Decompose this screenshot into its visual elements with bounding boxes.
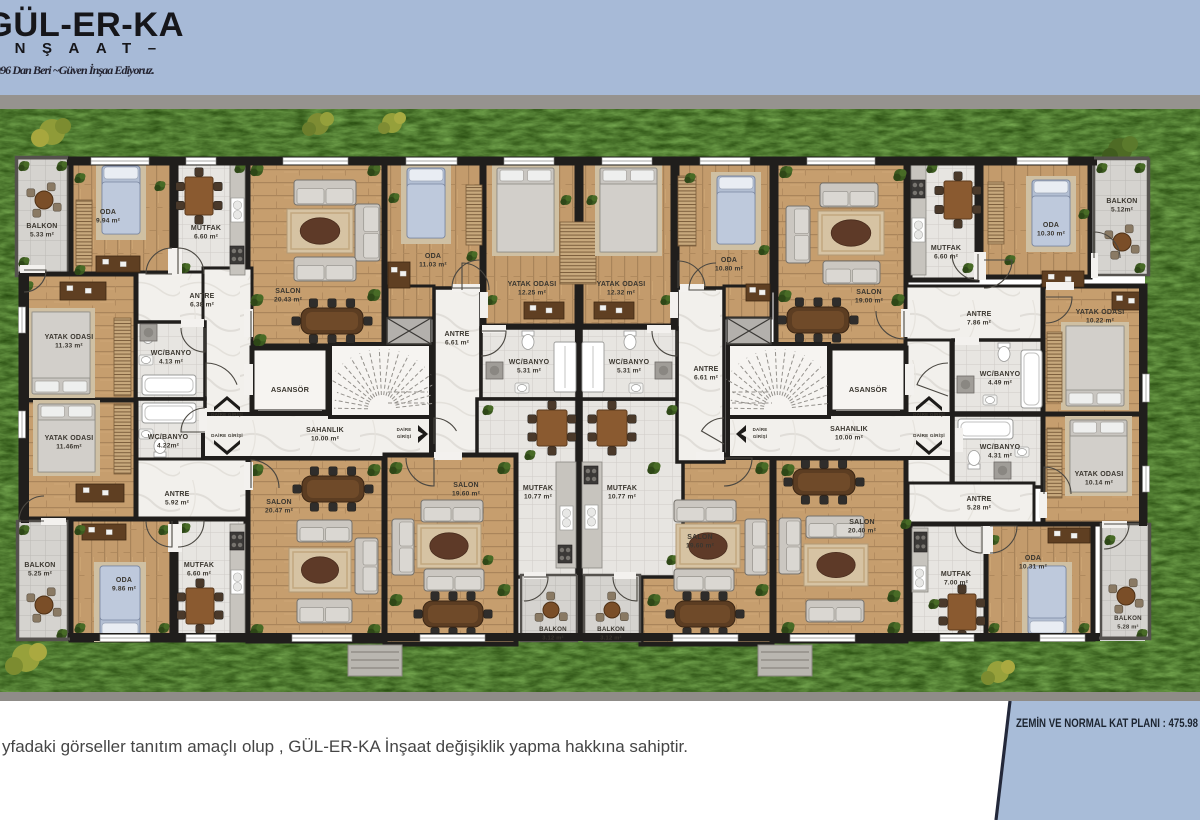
svg-text:WC/BANYO: WC/BANYO <box>151 350 192 357</box>
svg-text:10.30 m²: 10.30 m² <box>1037 231 1066 238</box>
svg-text:4.22m²: 4.22m² <box>157 443 180 450</box>
svg-text:ANTRE: ANTRE <box>444 331 469 338</box>
svg-text:DAİRE: DAİRE <box>397 427 412 432</box>
svg-text:ODA: ODA <box>1025 555 1041 562</box>
svg-text:DAİRE GİRİŞİ: DAİRE GİRİŞİ <box>211 432 243 438</box>
svg-text:ZEMİN VE NORMAL KAT PLANI : 47: ZEMİN VE NORMAL KAT PLANI : 475.98 <box>1016 717 1199 730</box>
svg-text:YATAK ODASI: YATAK ODASI <box>1076 309 1125 316</box>
svg-text:YATAK ODASI: YATAK ODASI <box>1075 471 1124 478</box>
svg-text:MUTFAK: MUTFAK <box>931 245 961 252</box>
svg-text:19.60 m²: 19.60 m² <box>686 543 715 550</box>
svg-text:BALKON: BALKON <box>597 626 625 633</box>
svg-text:11.33 m²: 11.33 m² <box>55 343 83 350</box>
svg-text:10.31 m²: 10.31 m² <box>1019 564 1048 571</box>
svg-text:SAHANLIK: SAHANLIK <box>306 427 344 434</box>
svg-text:MUTFAK: MUTFAK <box>184 562 214 569</box>
svg-text:ODA: ODA <box>116 577 132 584</box>
svg-text:GİRİŞİ: GİRİŞİ <box>753 434 767 439</box>
svg-text:DAİRE GİRİŞİ: DAİRE GİRİŞİ <box>211 411 243 417</box>
svg-text:10.22 m²: 10.22 m² <box>1086 318 1115 325</box>
svg-text:YATAK ODASI: YATAK ODASI <box>597 281 646 288</box>
svg-text:ANTRE: ANTRE <box>189 293 214 300</box>
svg-text:ASANSÖR: ASANSÖR <box>271 385 310 394</box>
svg-text:SALON: SALON <box>275 288 301 295</box>
svg-text:DAİRE GİRİŞİ: DAİRE GİRİŞİ <box>913 432 945 438</box>
svg-text:GÜL-ER-KA: GÜL-ER-KA <box>0 5 184 44</box>
svg-text:10.80 m²: 10.80 m² <box>715 266 744 273</box>
svg-text:12.25 m²: 12.25 m² <box>518 290 547 297</box>
svg-text:DAİRE GİRİŞİ: DAİRE GİRİŞİ <box>913 411 945 417</box>
svg-text:SALON: SALON <box>849 519 875 526</box>
svg-text:19.00 m²: 19.00 m² <box>855 298 884 305</box>
svg-text:10.77 m²: 10.77 m² <box>608 494 637 501</box>
svg-text:YATAK ODASI: YATAK ODASI <box>45 435 94 442</box>
svg-text:6.61 m²: 6.61 m² <box>445 340 470 347</box>
svg-text:5.31 m²: 5.31 m² <box>617 368 642 375</box>
svg-text:6.60 m²: 6.60 m² <box>194 234 219 241</box>
svg-text:5.28 m²: 5.28 m² <box>1117 624 1138 631</box>
svg-text:19.60 m²: 19.60 m² <box>452 491 481 498</box>
svg-text:9.94 m²: 9.94 m² <box>96 218 121 225</box>
svg-text:SALON: SALON <box>687 534 713 541</box>
svg-text:3.12 m²: 3.12 m² <box>600 635 621 642</box>
svg-text:4.13 m²: 4.13 m² <box>159 359 184 366</box>
svg-text:10.00 m²: 10.00 m² <box>835 435 864 442</box>
svg-text:SALON: SALON <box>453 482 479 489</box>
svg-text:6.38 m²: 6.38 m² <box>190 302 215 309</box>
svg-text:11.03 m²: 11.03 m² <box>419 262 447 269</box>
svg-text:WC/BANYO: WC/BANYO <box>980 371 1021 378</box>
svg-text:ODA: ODA <box>100 209 116 216</box>
svg-text:DAİRE: DAİRE <box>753 427 768 432</box>
svg-text:GİRİŞİ: GİRİŞİ <box>397 434 411 439</box>
svg-text:MUTFAK: MUTFAK <box>607 485 637 492</box>
svg-text:5.31 m²: 5.31 m² <box>517 368 542 375</box>
svg-text:ANTRE: ANTRE <box>966 496 991 503</box>
svg-text:ANTRE: ANTRE <box>164 491 189 498</box>
svg-text:5.92 m²: 5.92 m² <box>165 500 190 507</box>
svg-text:10.77 m²: 10.77 m² <box>524 494 553 501</box>
svg-text:20.43 m²: 20.43 m² <box>274 297 303 304</box>
svg-text:6.60 m²: 6.60 m² <box>934 254 959 261</box>
svg-text:ODA: ODA <box>721 257 737 264</box>
svg-text:4.31 m²: 4.31 m² <box>988 453 1013 460</box>
svg-text:BALKON: BALKON <box>26 223 57 230</box>
svg-text:WC/BANYO: WC/BANYO <box>980 444 1021 451</box>
svg-text:5.12m²: 5.12m² <box>1111 207 1134 214</box>
svg-text:20.40 m²: 20.40 m² <box>848 528 877 535</box>
svg-text:SAHANLIK: SAHANLIK <box>830 426 868 433</box>
svg-text:ANTRE: ANTRE <box>966 311 991 318</box>
svg-text:SALON: SALON <box>856 289 882 296</box>
svg-text:YATAK ODASI: YATAK ODASI <box>508 281 557 288</box>
svg-text:ODA: ODA <box>425 253 441 260</box>
svg-text:İNŞAAT–: İNŞAAT– <box>0 40 173 57</box>
svg-text:yfadaki görseller tanıtım amaç: yfadaki görseller tanıtım amaçlı olup , … <box>2 737 688 756</box>
svg-text:YATAK ODASI: YATAK ODASI <box>45 334 94 341</box>
svg-text:ANTRE: ANTRE <box>693 366 718 373</box>
svg-text:7.00 m²: 7.00 m² <box>944 580 969 587</box>
svg-text:20.47 m²: 20.47 m² <box>265 508 294 515</box>
svg-text:BALKON: BALKON <box>24 562 55 569</box>
svg-text:BALKON: BALKON <box>1106 198 1137 205</box>
svg-text:MUTFAK: MUTFAK <box>523 485 553 492</box>
svg-text:4.49 m²: 4.49 m² <box>988 380 1013 387</box>
svg-text:6.60 m²: 6.60 m² <box>187 571 212 578</box>
svg-text:ODA: ODA <box>1043 222 1059 229</box>
svg-text:BALKON: BALKON <box>539 626 567 633</box>
svg-text:WC/BANYO: WC/BANYO <box>148 434 189 441</box>
svg-text:WC/BANYO: WC/BANYO <box>509 359 550 366</box>
svg-text:12.32 m²: 12.32 m² <box>607 290 636 297</box>
svg-text:3.12 m²: 3.12 m² <box>542 635 563 642</box>
svg-text:MUTFAK: MUTFAK <box>191 225 221 232</box>
svg-text:SALON: SALON <box>266 499 292 506</box>
svg-text:10.00 m²: 10.00 m² <box>311 436 340 443</box>
svg-text:7.86 m²: 7.86 m² <box>967 320 992 327</box>
svg-text:5.28 m²: 5.28 m² <box>967 505 992 512</box>
svg-text:6.61 m²: 6.61 m² <box>694 375 719 382</box>
svg-text:BALKON: BALKON <box>1114 615 1142 622</box>
svg-text:5.25 m²: 5.25 m² <box>28 571 53 578</box>
svg-text:5.33 m²: 5.33 m² <box>30 232 55 239</box>
svg-text:ASANSÖR: ASANSÖR <box>849 385 888 394</box>
svg-text:11.46m²: 11.46m² <box>56 444 82 451</box>
svg-text:MUTFAK: MUTFAK <box>941 571 971 578</box>
svg-text:WC/BANYO: WC/BANYO <box>609 359 650 366</box>
svg-text:10.14 m²: 10.14 m² <box>1085 480 1114 487</box>
svg-text:996 Dan Beri ~Güven İnşaa Ediy: 996 Dan Beri ~Güven İnşaa Ediyoruz. <box>0 63 155 77</box>
svg-text:9.86 m²: 9.86 m² <box>112 586 137 593</box>
